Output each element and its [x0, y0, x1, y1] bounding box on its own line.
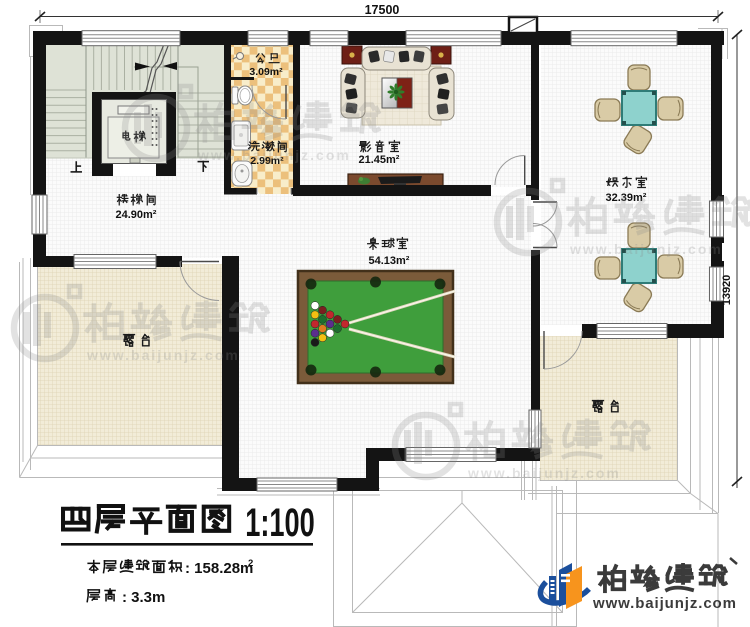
svg-text:: 3.3m: : 3.3m [122, 589, 165, 606]
svg-text:www.baijunjz.com: www.baijunjz.com [569, 241, 723, 257]
svg-text:www.baijunjz.com: www.baijunjz.com [197, 147, 351, 163]
svg-text:1:100: 1:100 [245, 501, 315, 545]
svg-text:2: 2 [248, 558, 253, 569]
svg-text:24.90m²: 24.90m² [116, 209, 157, 221]
svg-text:www.baijunjz.com: www.baijunjz.com [467, 465, 621, 481]
svg-text:: 158.28m: : 158.28m [185, 560, 253, 577]
svg-text:17500: 17500 [365, 3, 400, 17]
svg-text:www.baijunjz.com: www.baijunjz.com [86, 347, 240, 363]
svg-text:3.09m²: 3.09m² [249, 66, 283, 78]
svg-text:54.13m²: 54.13m² [369, 255, 410, 267]
svg-text:13920: 13920 [721, 275, 733, 306]
svg-text:21.45m²: 21.45m² [359, 154, 400, 166]
svg-text:www.baijunjz.com: www.baijunjz.com [592, 595, 737, 612]
